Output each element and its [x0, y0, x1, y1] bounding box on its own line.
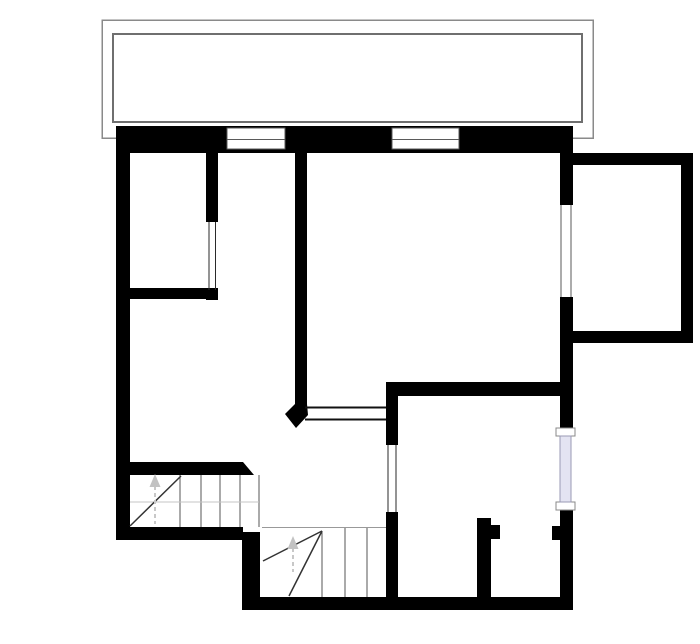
wall-partition [477, 518, 491, 603]
stair-upper-arrow-head [150, 474, 161, 487]
wall-left-exterior [116, 126, 130, 540]
floor-plan [0, 0, 700, 644]
wall-bottom-left [116, 527, 243, 540]
balcony-inner-outline [113, 34, 582, 122]
wall-stair-top [128, 462, 243, 475]
window-right-lavender-cap-bottom [556, 502, 575, 510]
wall-topleft-room-bottom [128, 288, 218, 299]
wall-bottomright-left-lower [386, 512, 398, 609]
wall-right-upper [560, 153, 573, 205]
wall-top-exterior [116, 126, 573, 153]
wall-bottomright-room-top [386, 382, 573, 396]
wall-extension-bottom [573, 331, 693, 343]
wall-right-lower [560, 510, 573, 610]
stair-lower-arrow-head [288, 536, 299, 549]
wall-right-stub [552, 526, 562, 540]
wall-partition-stub [491, 525, 500, 539]
balcony-outer-outline [102, 20, 593, 138]
wall-topleft-room-right [206, 153, 218, 222]
wall-central [295, 153, 307, 405]
window-top-1-frame [227, 128, 285, 149]
wall-bottomright-left-upper [386, 396, 398, 445]
window-right-lavender-glass [560, 436, 571, 502]
wall-extension-right [681, 153, 693, 343]
wall-right-middle [560, 297, 573, 428]
floor-plan-svg [0, 0, 700, 644]
wall-topleft-room-endcap [206, 288, 218, 300]
window-top-2-frame [392, 128, 459, 149]
wall-extension-top [573, 153, 693, 165]
wall-central-tip [285, 404, 308, 428]
wall-bottom-lower [242, 597, 573, 610]
wall-stair-top-chamfer [243, 462, 254, 475]
window-right-lavender-cap-top [556, 428, 575, 436]
